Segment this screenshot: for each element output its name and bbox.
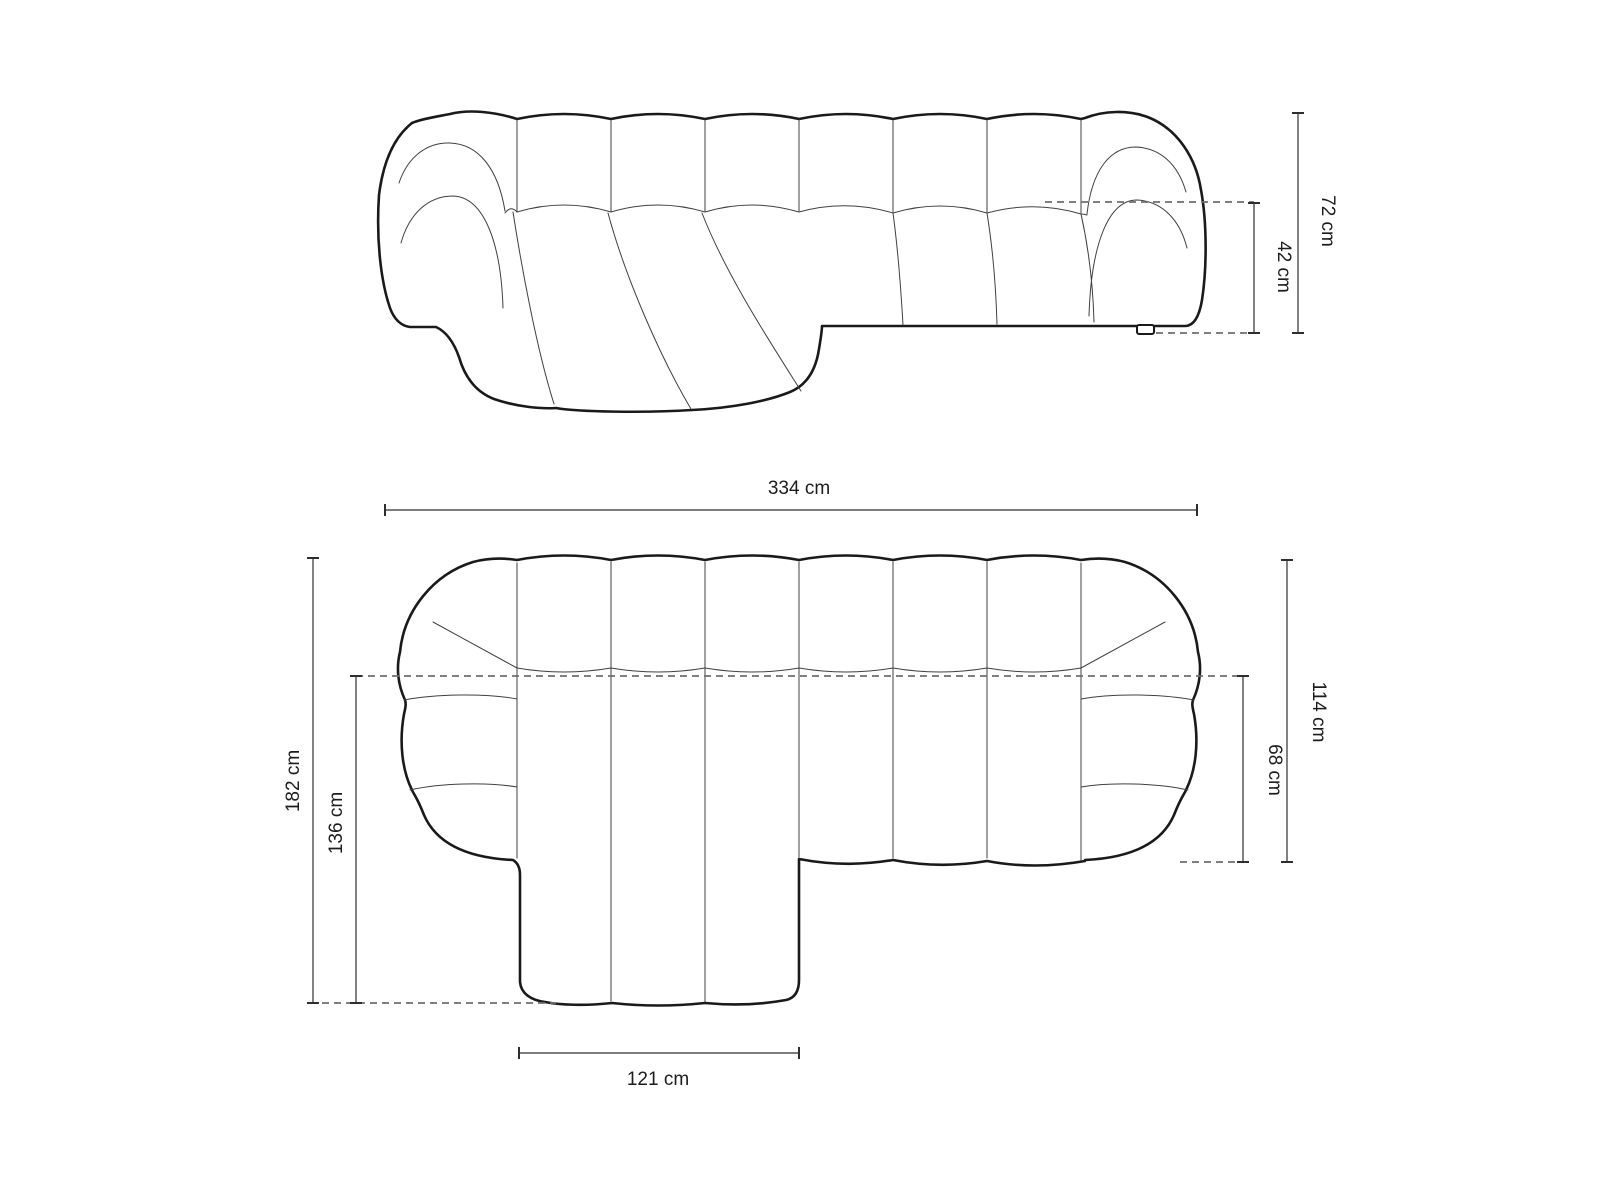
top-plan-view: 334 cm 182 cm 136 cm 114 cm bbox=[283, 478, 1329, 1090]
sofa-dimension-diagram: 42 cm 72 cm bbox=[0, 0, 1600, 1200]
dim-seat-depth: 68 cm bbox=[1237, 676, 1285, 862]
seat-height-label: 42 cm bbox=[1273, 241, 1294, 293]
chaise-depth-label: 136 cm bbox=[326, 792, 347, 854]
dim-seat-height: 42 cm bbox=[1248, 203, 1294, 333]
sofa-front-outline bbox=[378, 112, 1206, 412]
side-depth-label: 114 cm bbox=[1308, 682, 1329, 743]
chaise-width-label: 121 cm bbox=[627, 1069, 689, 1090]
seat-depth-label: 68 cm bbox=[1264, 744, 1285, 796]
total-height-label: 72 cm bbox=[1317, 195, 1338, 247]
dim-total-depth: 182 cm bbox=[283, 558, 319, 1003]
total-width-label: 334 cm bbox=[768, 478, 830, 499]
dim-chaise-depth: 136 cm bbox=[326, 676, 362, 1003]
front-elevation-view: 42 cm 72 cm bbox=[378, 112, 1338, 412]
dim-side-depth: 114 cm bbox=[1281, 560, 1329, 862]
dim-total-height: 72 cm bbox=[1292, 113, 1338, 333]
dim-total-width: 334 cm bbox=[385, 478, 1197, 516]
total-depth-label: 182 cm bbox=[283, 750, 304, 812]
sofa-foot bbox=[1137, 325, 1154, 334]
diagram-canvas: 42 cm 72 cm bbox=[0, 0, 1600, 1200]
dim-chaise-width: 121 cm bbox=[519, 1047, 799, 1090]
